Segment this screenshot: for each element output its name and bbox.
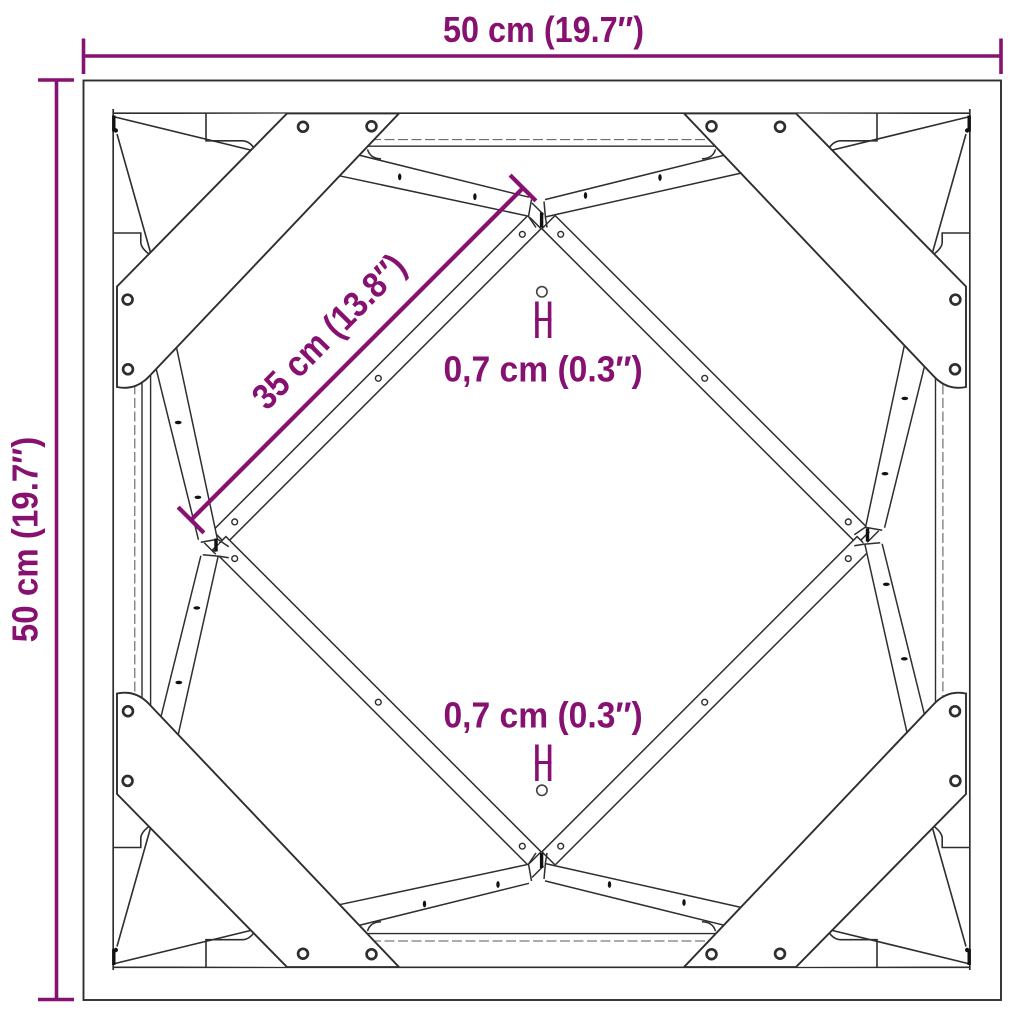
svg-text:50 cm (19.7″): 50 cm (19.7″) (443, 10, 644, 50)
svg-text:50 cm (19.7″): 50 cm (19.7″) (6, 437, 46, 642)
svg-text:0,7 cm (0.3″): 0,7 cm (0.3″) (443, 350, 642, 390)
svg-text:0,7 cm (0.3″): 0,7 cm (0.3″) (443, 696, 642, 736)
